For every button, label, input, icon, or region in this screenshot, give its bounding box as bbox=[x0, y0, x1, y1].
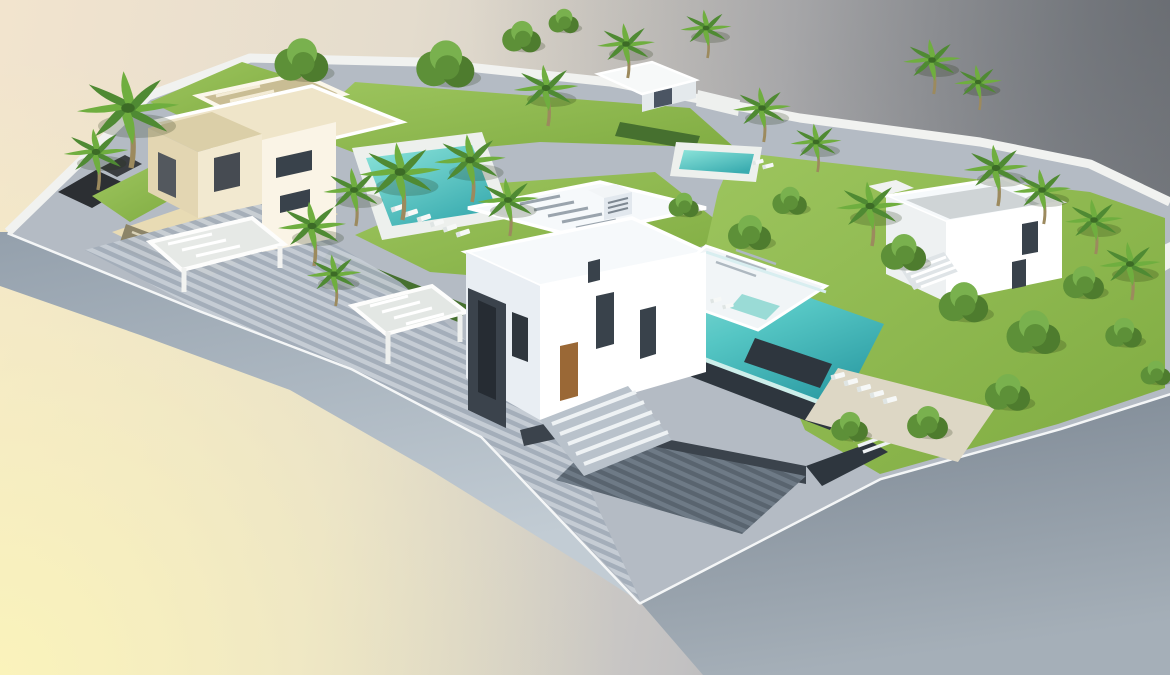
villa-window bbox=[512, 312, 528, 362]
round-tree bbox=[502, 21, 545, 53]
villa-window bbox=[640, 306, 656, 359]
entry-door-slot bbox=[478, 300, 496, 400]
render-canvas bbox=[0, 0, 1170, 675]
tower-window bbox=[158, 152, 176, 198]
villa-window bbox=[596, 292, 614, 349]
palm-tree bbox=[954, 65, 1002, 110]
tower-window bbox=[214, 152, 240, 192]
palm-tree bbox=[903, 39, 961, 94]
villa-window bbox=[588, 259, 600, 283]
scene-illustration bbox=[0, 0, 1170, 675]
villa-window bbox=[1022, 221, 1038, 255]
round-tree bbox=[275, 38, 335, 82]
villa-window bbox=[1012, 259, 1026, 289]
wood-entry-door bbox=[560, 342, 578, 401]
round-tree bbox=[416, 40, 481, 87]
rear-pool bbox=[670, 142, 762, 182]
round-tree bbox=[549, 9, 583, 34]
palm-tree bbox=[681, 10, 732, 58]
